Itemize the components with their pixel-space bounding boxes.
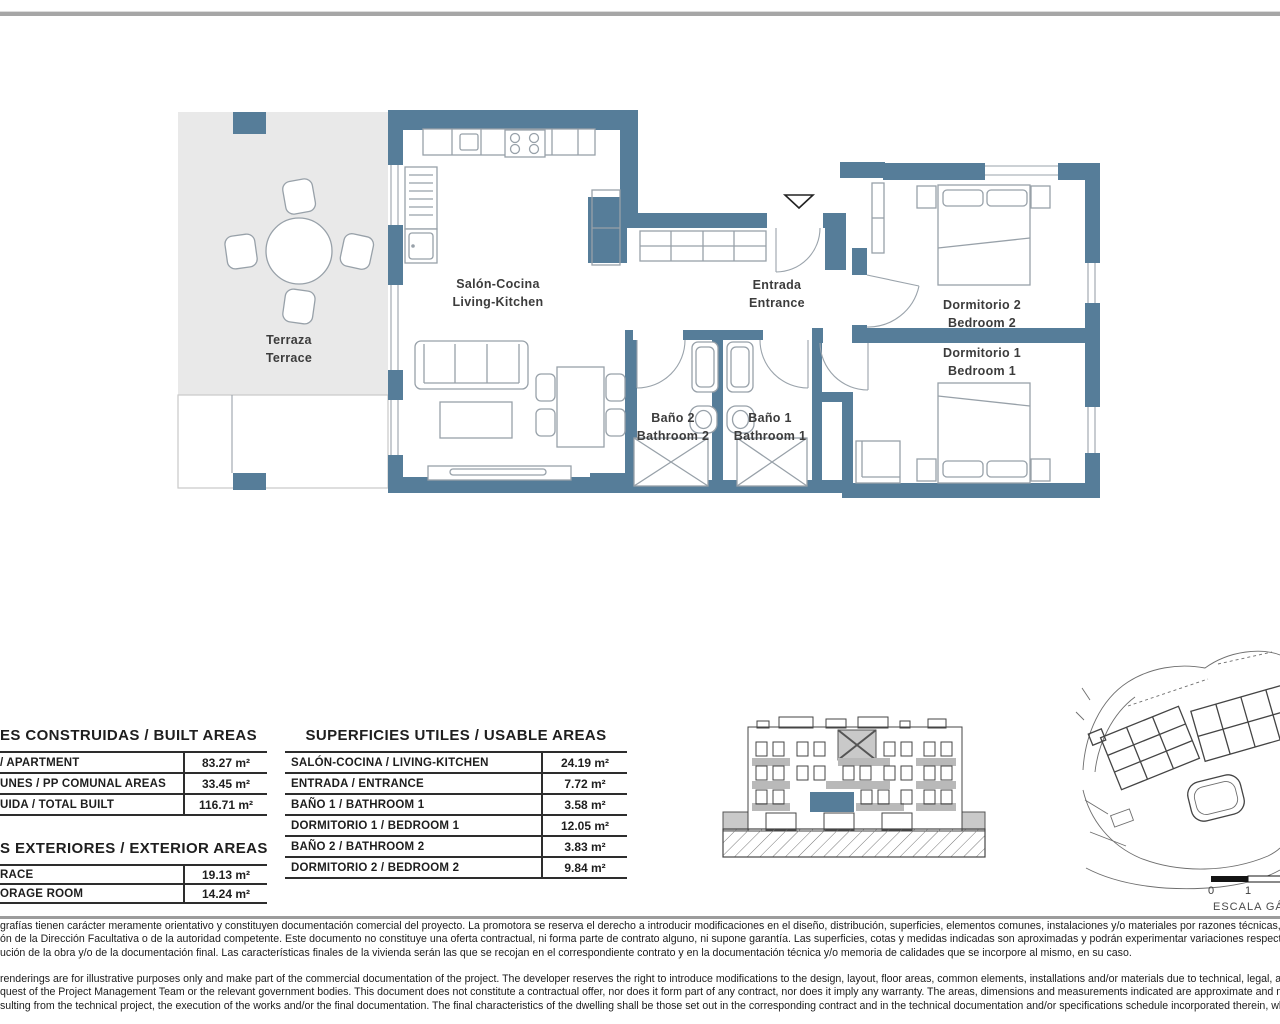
room-name-es: Entrada xyxy=(749,277,805,295)
room-name-es: Baño 2 xyxy=(637,410,709,428)
room-name-en: Entrance xyxy=(749,295,805,313)
disclaimer-english: renderings are for illustrative purposes… xyxy=(0,973,1280,1013)
table-row: RACE 19.13 m² xyxy=(0,866,267,885)
built-areas-title: ES CONSTRUIDAS / BUILT AREAS xyxy=(0,727,267,744)
room-label-dormitorio2: Dormitorio 2 Bedroom 2 xyxy=(943,297,1021,332)
room-name-es: Terraza xyxy=(266,332,312,350)
room-name-en: Bedroom 1 xyxy=(943,363,1021,381)
row-value: 3.58 m² xyxy=(543,795,627,814)
entrance-elements xyxy=(640,195,820,272)
row-value: 19.13 m² xyxy=(185,866,267,883)
room-label-entrada: Entrada Entrance xyxy=(749,277,805,312)
row-value: 9.84 m² xyxy=(543,858,627,877)
room-name-en: Bathroom 1 xyxy=(734,428,806,446)
row-label: RACE xyxy=(0,866,185,883)
table-row: / APARTMENT 83.27 m² xyxy=(0,753,267,774)
row-value: 7.72 m² xyxy=(543,774,627,793)
row-label: / APARTMENT xyxy=(0,753,185,772)
room-label-bano2: Baño 2 Bathroom 2 xyxy=(637,410,709,445)
usable-areas-table: SUPERFICIES UTILES / USABLE AREAS SALÓN-… xyxy=(285,727,627,879)
row-value: 3.83 m² xyxy=(543,837,627,856)
table-row: BAÑO 1 / BATHROOM 1 3.58 m² xyxy=(285,795,627,816)
room-name-es: Dormitorio 2 xyxy=(943,297,1021,315)
footer-divider xyxy=(0,916,1280,919)
disclaimer-line: renderings are for illustrative purposes… xyxy=(0,973,1280,986)
brochure-page: { "colors": { "wall": "#567d99", "terrac… xyxy=(0,0,1280,1024)
room-name-es: Baño 1 xyxy=(734,410,806,428)
disclaimer-line: sulting from the technical project, the … xyxy=(0,1000,1280,1013)
row-label: UIDA / TOTAL BUILT xyxy=(0,795,185,814)
row-label: UNES / PP COMUNAL AREAS xyxy=(0,774,185,793)
site-plan xyxy=(1076,651,1280,888)
row-label: SALÓN-COCINA / LIVING-KITCHEN xyxy=(285,753,543,772)
row-value: 33.45 m² xyxy=(185,774,267,793)
exterior-areas-title: S EXTERIORES / EXTERIOR AREAS xyxy=(0,840,267,857)
row-label: ORAGE ROOM xyxy=(0,885,185,902)
disclaimer-line: ución de la obra y/o de la documentación… xyxy=(0,947,1280,960)
room-label-bano1: Baño 1 Bathroom 1 xyxy=(734,410,806,445)
disclaimer-line: ón de la Dirección Facultativa o de la a… xyxy=(0,933,1280,946)
row-label: DORMITORIO 1 / BEDROOM 1 xyxy=(285,816,543,835)
row-value: 14.24 m² xyxy=(185,885,267,902)
row-label: DORMITORIO 2 / BEDROOM 2 xyxy=(285,858,543,877)
table-row: ORAGE ROOM 14.24 m² xyxy=(0,885,267,904)
row-value: 116.71 m² xyxy=(185,795,267,814)
living-furniture xyxy=(415,341,625,480)
disclaimer-line: grafías tienen carácter meramente orient… xyxy=(0,920,1280,933)
scale-tick-0: 0 xyxy=(1205,885,1217,897)
table-row: SALÓN-COCINA / LIVING-KITCHEN 24.19 m² xyxy=(285,753,627,774)
row-label: ENTRADA / ENTRANCE xyxy=(285,774,543,793)
table-row: ENTRADA / ENTRANCE 7.72 m² xyxy=(285,774,627,795)
row-label: BAÑO 1 / BATHROOM 1 xyxy=(285,795,543,814)
scale-tick-1: 1 xyxy=(1242,885,1254,897)
disclaimer-line: quest of the Project Management Team or … xyxy=(0,986,1280,999)
table-row: BAÑO 2 / BATHROOM 2 3.83 m² xyxy=(285,837,627,858)
table-row: UNES / PP COMUNAL AREAS 33.45 m² xyxy=(0,774,267,795)
room-name-es: Salón-Cocina xyxy=(452,276,543,294)
room-name-en: Bathroom 2 xyxy=(637,428,709,446)
room-label-terraza: Terraza Terrace xyxy=(266,332,312,367)
highlighted-unit xyxy=(810,792,854,812)
room-name-en: Bedroom 2 xyxy=(943,315,1021,333)
room-label-salon-cocina: Salón-Cocina Living-Kitchen xyxy=(452,276,543,311)
building-elevation xyxy=(723,717,985,857)
room-name-en: Living-Kitchen xyxy=(452,294,543,312)
table-row: DORMITORIO 2 / BEDROOM 2 9.84 m² xyxy=(285,858,627,879)
table-row: DORMITORIO 1 / BEDROOM 1 12.05 m² xyxy=(285,816,627,837)
room-name-es: Dormitorio 1 xyxy=(943,345,1021,363)
row-value: 24.19 m² xyxy=(543,753,627,772)
scale-bar xyxy=(1211,876,1280,882)
kitchen-counter xyxy=(405,129,620,265)
exterior-areas-table: S EXTERIORES / EXTERIOR AREAS RACE 19.13… xyxy=(0,840,267,904)
usable-areas-title: SUPERFICIES UTILES / USABLE AREAS xyxy=(285,727,627,744)
row-label: BAÑO 2 / BATHROOM 2 xyxy=(285,837,543,856)
disclaimer-spanish: grafías tienen carácter meramente orient… xyxy=(0,920,1280,960)
row-value: 12.05 m² xyxy=(543,816,627,835)
room-label-dormitorio1: Dormitorio 1 Bedroom 1 xyxy=(943,345,1021,380)
row-value: 83.27 m² xyxy=(185,753,267,772)
table-row: UIDA / TOTAL BUILT 116.71 m² xyxy=(0,795,267,816)
built-areas-table: ES CONSTRUIDAS / BUILT AREAS / APARTMENT… xyxy=(0,727,267,816)
room-name-en: Terrace xyxy=(266,350,312,368)
terrace-area xyxy=(178,112,388,490)
scale-caption: ESCALA GÁFICA xyxy=(1213,901,1280,913)
